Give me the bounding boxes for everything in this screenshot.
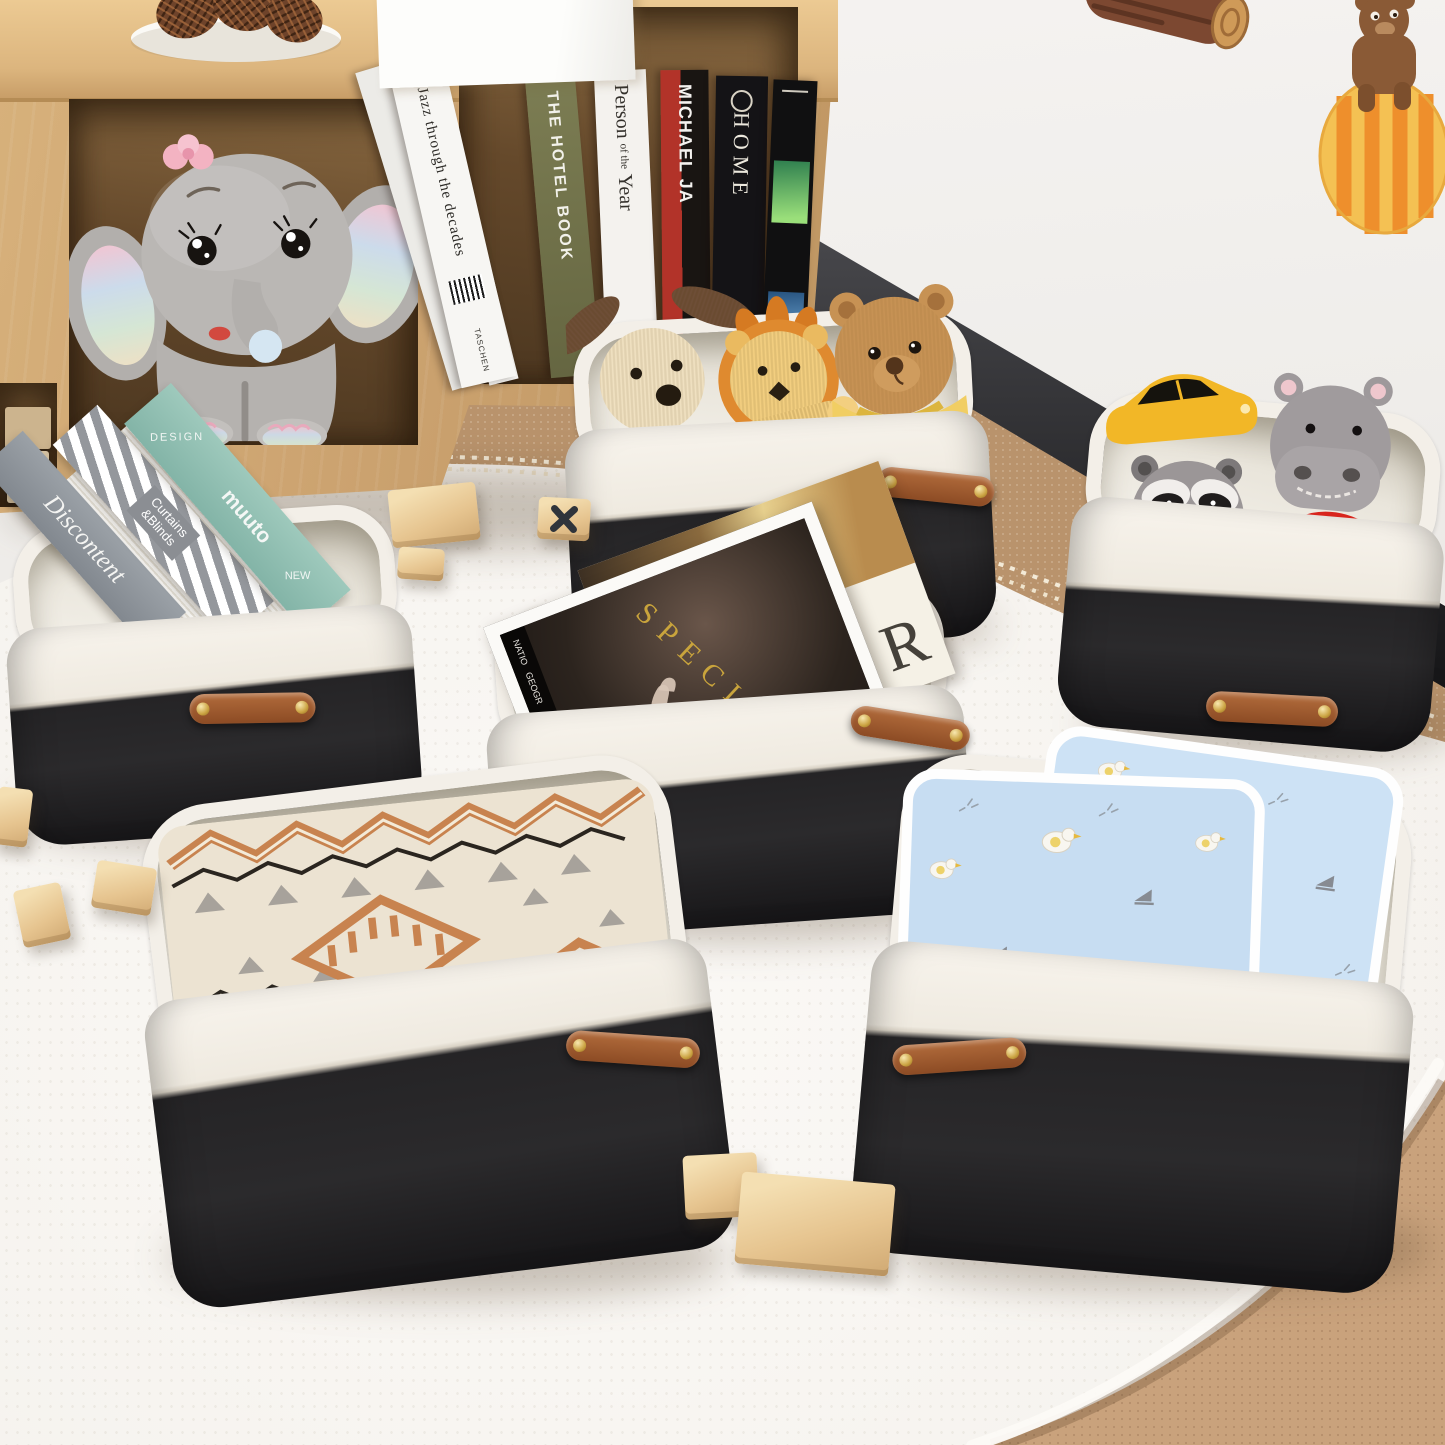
plush-hippo [1264,368,1397,515]
basket-front [847,938,1416,1297]
kids-room-scene: Jazz through the decades TASCHEN THE HOT… [0,0,1445,1445]
hotel-book-title: THE HOTEL BOOK [542,90,575,262]
magazine-edge-top: NATIO [511,638,530,667]
handle-rivet [974,484,988,498]
elephant-tongue [209,327,230,341]
person-title-line3: Year [614,174,638,212]
shelf-cube-elephant [69,99,418,445]
handle-rivet [1212,699,1226,713]
block-x-mark [537,497,591,542]
handle-rivet [196,703,209,716]
teal-book-edge: DESIGN [150,431,204,444]
teal-book-tag: NEW [285,570,311,582]
teal-book-brand: muuto [216,485,276,549]
wooden-block [397,546,445,581]
michael-book-title: MICHAEL JA [674,84,696,204]
wooden-block [734,1171,895,1276]
wooden-block [387,482,481,549]
basket-right-toys [1054,386,1445,755]
handle-rivet [573,1039,587,1053]
white-box [376,0,635,88]
handle-rivet [1317,705,1331,719]
person-book-title: Person of the Year [609,84,638,212]
handle-rivet [679,1046,693,1060]
basket-bottom-right-blanket [847,747,1433,1296]
magazine-edge-bottom: GEOGR [523,671,544,706]
handle-rivet [295,701,308,714]
wooden-block-x [537,497,591,542]
handle-rivet [1006,1046,1020,1060]
elephant-bow [163,134,214,169]
toy-car-yellow [1103,369,1259,446]
jazz-book-publisher: TASCHEN [472,328,491,374]
art-book-image-green [771,160,810,224]
person-title-line1: Person [610,84,634,139]
art-book-textline [782,90,808,93]
basket-bottom-left-blanket [118,745,741,1312]
magazine-back-letter: R [871,602,938,688]
person-title-line2: of the [617,143,630,169]
home-book-ornament [731,90,753,112]
handle-rivet [899,1053,913,1067]
basket-handle [189,693,316,725]
plate-with-pinecones [126,0,344,64]
jazz-book-barcode [449,274,487,305]
handle-rivet [857,713,872,728]
wooden-block [91,860,158,917]
plush-elephant [69,103,418,445]
